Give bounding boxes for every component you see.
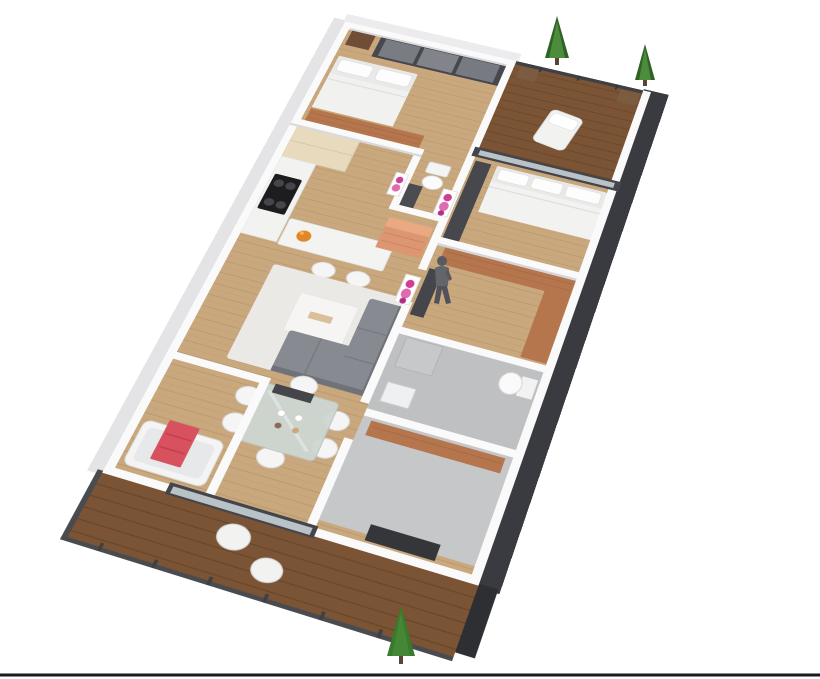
tree-cone bbox=[635, 44, 655, 80]
tree-trunk bbox=[555, 58, 559, 65]
tree-trunk bbox=[643, 80, 647, 86]
tree-balcony-right bbox=[635, 44, 655, 86]
tree-cone-highlight bbox=[549, 21, 565, 58]
floor-plan-scene bbox=[0, 0, 820, 679]
apartment-3d-plan bbox=[49, 22, 651, 679]
tree-balcony-left bbox=[545, 16, 569, 65]
tree-cone bbox=[545, 16, 569, 58]
tree-cone-highlight bbox=[639, 48, 651, 80]
